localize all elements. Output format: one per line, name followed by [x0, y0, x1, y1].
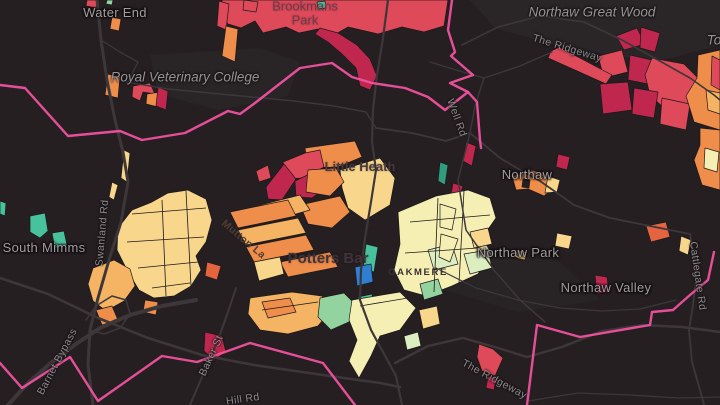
- road-cattlegate-rd: [689, 234, 704, 405]
- map-svg: [0, 0, 720, 405]
- choropleth-region[interactable]: [555, 233, 572, 249]
- choropleth-region[interactable]: [419, 306, 440, 329]
- choropleth-region[interactable]: [600, 82, 632, 114]
- choropleth-region[interactable]: [156, 87, 168, 110]
- choropleth-region[interactable]: [300, 196, 350, 228]
- choropleth-region[interactable]: [646, 222, 670, 242]
- choropleth-region[interactable]: [349, 292, 416, 378]
- choropleth-region[interactable]: [222, 26, 238, 62]
- boundary-southwest: [0, 343, 355, 405]
- choropleth-region[interactable]: [243, 0, 258, 12]
- choropleth-region[interactable]: [280, 252, 338, 277]
- choropleth-region[interactable]: [632, 88, 658, 118]
- choropleth-region[interactable]: [0, 201, 6, 216]
- choropleth-region[interactable]: [318, 293, 355, 330]
- choropleth-region[interactable]: [556, 154, 570, 170]
- map-canvas[interactable]: Water EndBrookmans ParkNorthaw Great Woo…: [0, 0, 720, 405]
- road-well-rd-branch: [430, 52, 552, 78]
- choropleth-region[interactable]: [256, 165, 271, 182]
- choropleth-region[interactable]: [88, 260, 135, 311]
- choropleth-region[interactable]: [205, 262, 221, 280]
- choropleth-region[interactable]: [486, 376, 496, 390]
- road-bottom-faint-lane: [528, 393, 720, 401]
- choropleth-region[interactable]: [317, 1, 326, 9]
- boundary-branch: [468, 92, 481, 148]
- choropleth-region[interactable]: [110, 17, 121, 31]
- choropleth-region[interactable]: [438, 162, 448, 185]
- choropleth-region[interactable]: [679, 236, 691, 255]
- choropleth-region[interactable]: [404, 332, 421, 350]
- choropleth-region[interactable]: [711, 56, 720, 90]
- choropleth-region[interactable]: [516, 250, 527, 260]
- choropleth-region[interactable]: [52, 231, 67, 249]
- choropleth-region[interactable]: [306, 168, 344, 196]
- choropleth-region[interactable]: [704, 148, 719, 172]
- choropleth-region[interactable]: [109, 182, 118, 200]
- choropleth-region[interactable]: [595, 275, 609, 294]
- choropleth-region[interactable]: [470, 228, 492, 248]
- choropleth-region[interactable]: [30, 213, 48, 238]
- choropleth-region[interactable]: [660, 98, 690, 130]
- landuse-patch: [470, 0, 720, 62]
- choropleth-region[interactable]: [106, 0, 113, 5]
- road-west-main-road: [88, 0, 128, 405]
- choropleth-region[interactable]: [522, 179, 530, 188]
- choropleth-region[interactable]: [217, 1, 229, 30]
- choropleth-region[interactable]: [355, 264, 373, 286]
